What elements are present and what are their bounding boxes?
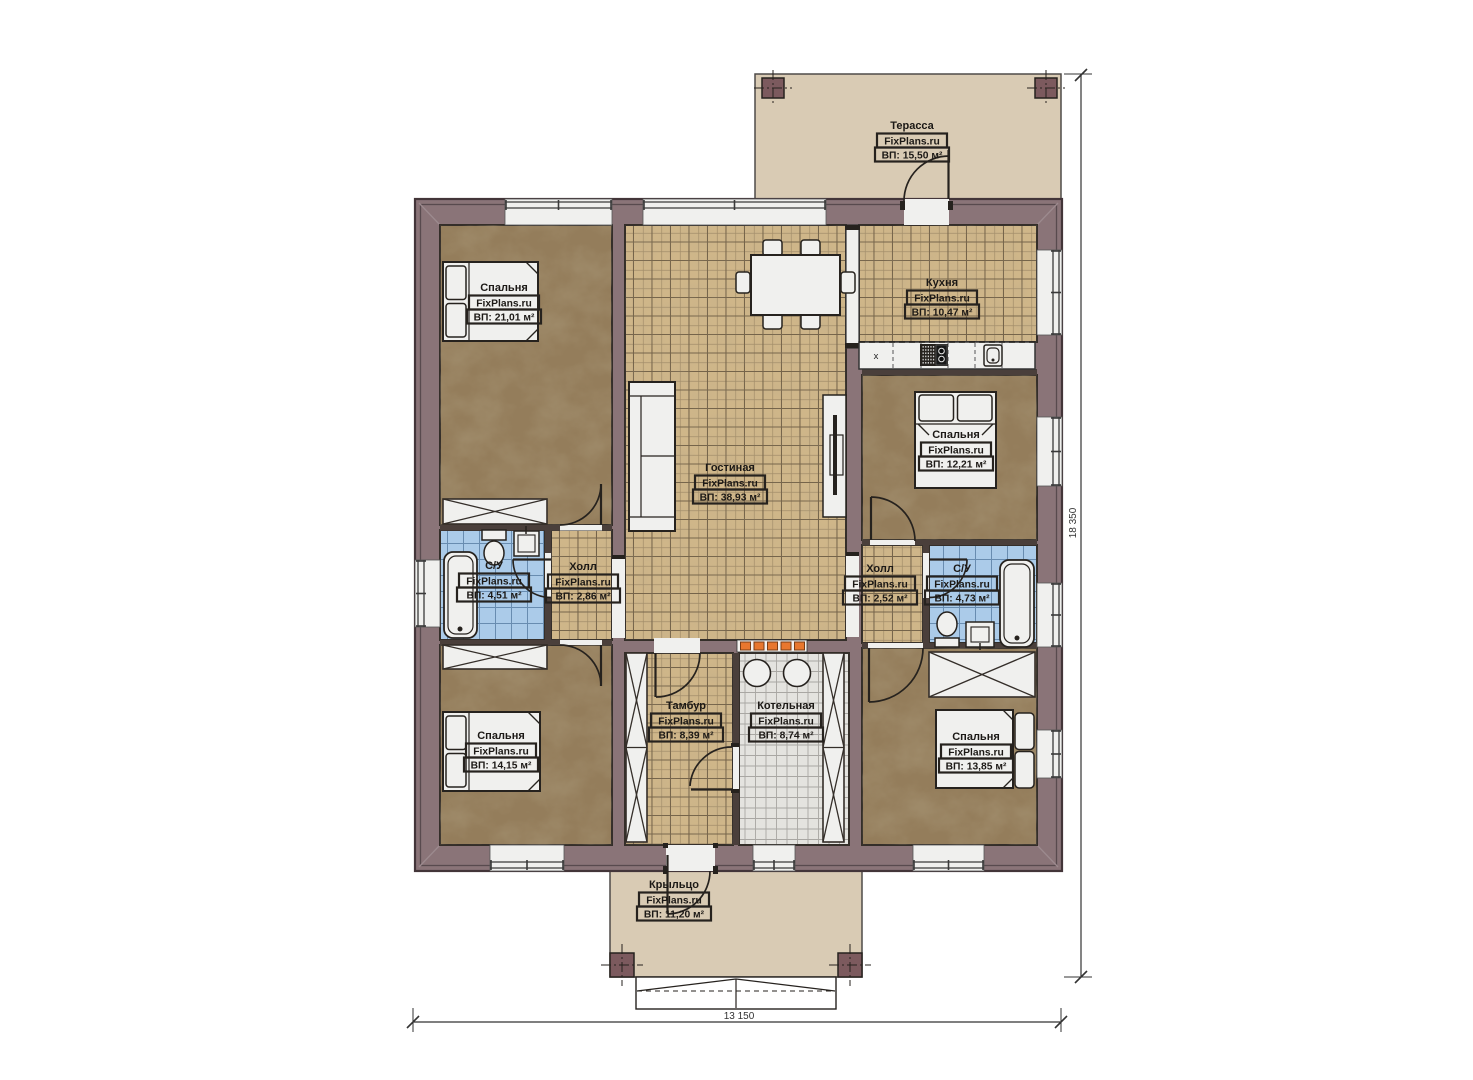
svg-text:ВП: 8,39 м²: ВП: 8,39 м² xyxy=(658,731,714,742)
svg-text:Котельная: Котельная xyxy=(757,700,815,712)
svg-text:Терасса: Терасса xyxy=(890,120,934,132)
svg-text:FixPlans.ru: FixPlans.ru xyxy=(884,137,940,148)
svg-text:FixPlans.ru: FixPlans.ru xyxy=(852,580,908,591)
svg-text:ВП: 4,73 м²: ВП: 4,73 м² xyxy=(934,594,990,605)
svg-text:ВП: 14,15 м²: ВП: 14,15 м² xyxy=(471,761,532,772)
svg-text:FixPlans.ru: FixPlans.ru xyxy=(555,578,611,589)
svg-text:Спальня: Спальня xyxy=(480,282,528,294)
svg-text:Спальня: Спальня xyxy=(477,730,525,742)
svg-text:FixPlans.ru: FixPlans.ru xyxy=(476,299,532,310)
svg-text:FixPlans.ru: FixPlans.ru xyxy=(928,446,984,457)
svg-text:Кухня: Кухня xyxy=(926,277,958,289)
svg-text:FixPlans.ru: FixPlans.ru xyxy=(934,580,990,591)
svg-text:ВП: 11,20 м²: ВП: 11,20 м² xyxy=(644,910,705,921)
svg-text:13 150: 13 150 xyxy=(724,1011,755,1022)
svg-text:С/У: С/У xyxy=(485,560,503,572)
svg-text:Холл: Холл xyxy=(866,563,894,575)
svg-text:ВП: 8,74 м²: ВП: 8,74 м² xyxy=(758,731,814,742)
svg-text:ВП: 21,01 м²: ВП: 21,01 м² xyxy=(474,313,535,324)
svg-text:FixPlans.ru: FixPlans.ru xyxy=(473,747,529,758)
svg-text:Спальня: Спальня xyxy=(932,429,980,441)
svg-text:Холл: Холл xyxy=(569,561,597,573)
svg-text:FixPlans.ru: FixPlans.ru xyxy=(466,577,522,588)
svg-text:ВП: 10,47 м²: ВП: 10,47 м² xyxy=(912,308,973,319)
svg-text:FixPlans.ru: FixPlans.ru xyxy=(702,479,758,490)
svg-text:FixPlans.ru: FixPlans.ru xyxy=(658,717,714,728)
svg-text:FixPlans.ru: FixPlans.ru xyxy=(914,294,970,305)
svg-text:ВП: 13,85 м²: ВП: 13,85 м² xyxy=(946,762,1007,773)
svg-text:Крыльцо: Крыльцо xyxy=(649,879,699,891)
svg-text:FixPlans.ru: FixPlans.ru xyxy=(758,717,814,728)
svg-text:18 350: 18 350 xyxy=(1068,507,1079,538)
svg-text:Тамбур: Тамбур xyxy=(666,700,706,712)
svg-text:x: x xyxy=(874,351,879,362)
svg-text:ВП: 2,52 м²: ВП: 2,52 м² xyxy=(852,594,908,605)
svg-text:ВП: 4,51 м²: ВП: 4,51 м² xyxy=(466,591,522,602)
svg-text:Спальня: Спальня xyxy=(952,731,1000,743)
svg-text:С/У: С/У xyxy=(953,563,971,575)
svg-text:FixPlans.ru: FixPlans.ru xyxy=(948,748,1004,759)
svg-text:ВП: 2,86 м²: ВП: 2,86 м² xyxy=(555,592,611,603)
svg-text:ВП: 12,21 м²: ВП: 12,21 м² xyxy=(926,460,987,471)
svg-text:Гостиная: Гостиная xyxy=(705,462,755,474)
svg-text:ВП: 15,50 м²: ВП: 15,50 м² xyxy=(882,151,943,162)
svg-text:FixPlans.ru: FixPlans.ru xyxy=(646,896,702,907)
svg-text:ВП: 38,93 м²: ВП: 38,93 м² xyxy=(700,493,761,504)
